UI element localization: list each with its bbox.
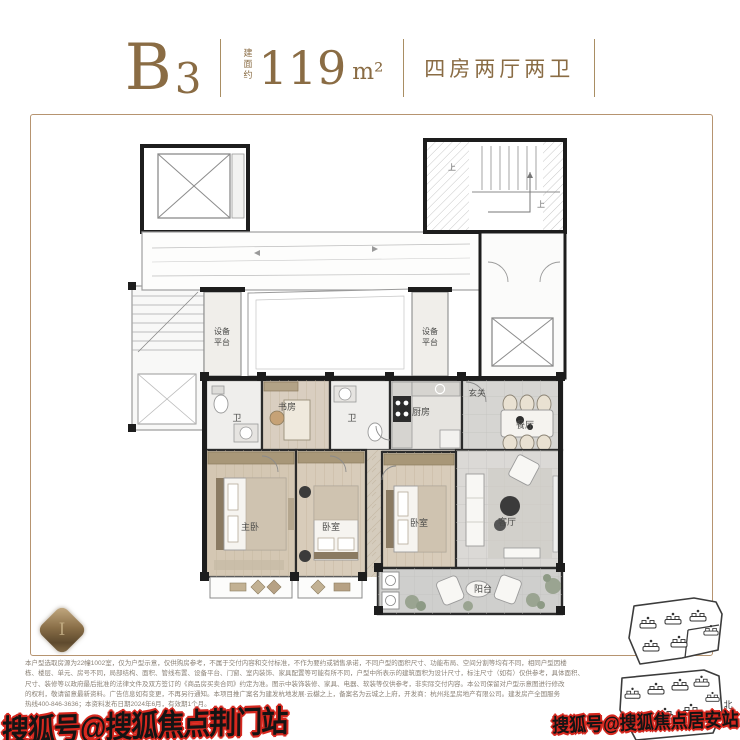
room-label: 卧室 [322, 521, 340, 532]
room-label: 阳台 [474, 583, 492, 594]
room-label: 书房 [278, 401, 296, 412]
bathroom-2 [330, 380, 390, 450]
room-label: 设备 [214, 326, 230, 336]
disclaimer-line: 尺寸、装修等以政府最后批准的法律文件及双方签订的《商品房买卖合同》约定为准。图示… [25, 680, 600, 690]
page: B3 建面约 119 m² 四房两厅两卫 [0, 0, 740, 740]
disclaimer-line: 栋、楼层、单元、房号不同，局部结构、面积、管线布置、设备平台、门窗、室内装饰、家… [25, 669, 600, 679]
balcony [378, 568, 562, 614]
study-room [262, 380, 330, 450]
top-right-core [425, 140, 565, 232]
top-left-core [142, 146, 248, 232]
room-label: 玄关 [468, 388, 486, 398]
room-label: 卫 [232, 413, 241, 423]
bay-windows [210, 577, 362, 598]
light-well [248, 289, 412, 376]
bedroom-2 [296, 450, 366, 577]
master-bedroom [206, 450, 296, 577]
right-core [480, 232, 565, 378]
room-label: 平台 [214, 337, 230, 347]
room-label: 设备 [422, 326, 438, 336]
room-label: 卧室 [410, 517, 428, 528]
room-label: 客厅 [498, 516, 516, 527]
corridor [142, 232, 480, 290]
room-label: 厨房 [412, 406, 430, 417]
room-label: 卫 [347, 413, 356, 423]
left-stair-core [128, 282, 206, 432]
living-room [456, 450, 562, 568]
up-label: 上 [537, 200, 545, 209]
room-label: 平台 [422, 337, 438, 347]
room-label: 主卧 [241, 521, 259, 532]
disclaimer-line: 本户型选取房源为22幢1002室，仅为户型示意，仅供购房参考，不属于交付内容和交… [25, 659, 600, 669]
disclaimer-line: 的权利，敬请留意最新资料。广告信息如有变更，不再另行通知。本项目推广案名为建发杭… [25, 690, 600, 700]
bedroom-3 [382, 452, 456, 568]
room-label: 餐厅 [516, 419, 534, 430]
logo-glyph: I [44, 612, 80, 648]
up-label: 上 [448, 163, 456, 172]
diamond-logo-icon: I [37, 605, 88, 656]
